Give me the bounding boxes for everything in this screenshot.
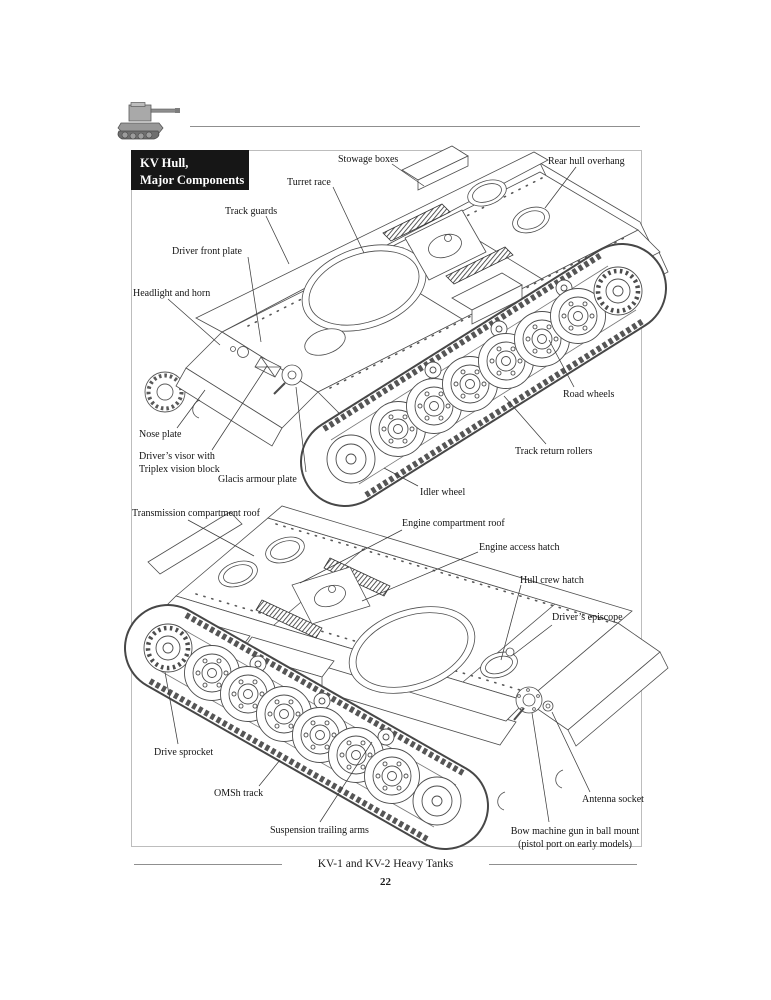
label-antenna-socket: Antenna socket [582, 793, 644, 806]
far-track-front [145, 372, 185, 412]
tow-shackle [556, 770, 563, 788]
label-engine-compartment-roof: Engine compartment roof [402, 517, 505, 530]
footer-book-title: KV-1 and KV-2 Heavy Tanks [318, 858, 453, 870]
headlight [238, 347, 249, 358]
label-rear-hull-overhang: Rear hull overhang [548, 155, 625, 168]
label-road-wheels: Road wheels [563, 388, 614, 401]
book-page: KV Hull, Major Components Stowage boxes … [0, 0, 771, 1000]
title-box: KV Hull, Major Components [131, 150, 249, 190]
label-nose-plate: Nose plate [139, 428, 182, 441]
label-turret-race: Turret race [287, 176, 331, 189]
hull-illustrations [0, 0, 771, 1000]
footer-rule-right [489, 864, 637, 865]
label-transmission-compartment-roof: Transmission compartment roof [132, 507, 260, 520]
label-hull-crew-hatch: Hull crew hatch [520, 574, 584, 587]
label-headlight-and-horn: Headlight and horn [133, 287, 210, 300]
antenna-socket [543, 701, 553, 711]
page-number: 22 [0, 876, 771, 888]
label-omsh-track: OMSh track [214, 787, 263, 800]
label-glacis-armour-plate: Glacis armour plate [218, 473, 297, 486]
label-track-guards: Track guards [225, 205, 277, 218]
label-bow-machine-gun: Bow machine gun in ball mount (pistol po… [505, 825, 645, 851]
label-idler-wheel: Idler wheel [420, 486, 465, 499]
footer-rule-left [134, 864, 282, 865]
footer: KV-1 and KV-2 Heavy Tanks [0, 858, 771, 870]
tow-shackle [498, 792, 505, 810]
label-drivers-visor: Driver’s visor with Triplex vision block [139, 450, 220, 476]
horn [231, 347, 236, 352]
label-drivers-episcope: Driver’s episcope [552, 611, 623, 624]
label-stowage-boxes: Stowage boxes [338, 153, 398, 166]
top-hull-illustration [145, 146, 668, 495]
label-driver-front-plate: Driver front plate [172, 245, 242, 258]
drivers-episcope-dome [506, 648, 514, 656]
tow-shackle [193, 400, 200, 418]
stowage-box-rear [402, 146, 468, 190]
label-drive-sprocket: Drive sprocket [154, 746, 213, 759]
label-suspension-trailing-arms: Suspension trailing arms [270, 824, 369, 837]
label-engine-access-hatch: Engine access hatch [479, 541, 560, 554]
label-track-return-rollers: Track return rollers [515, 445, 592, 458]
